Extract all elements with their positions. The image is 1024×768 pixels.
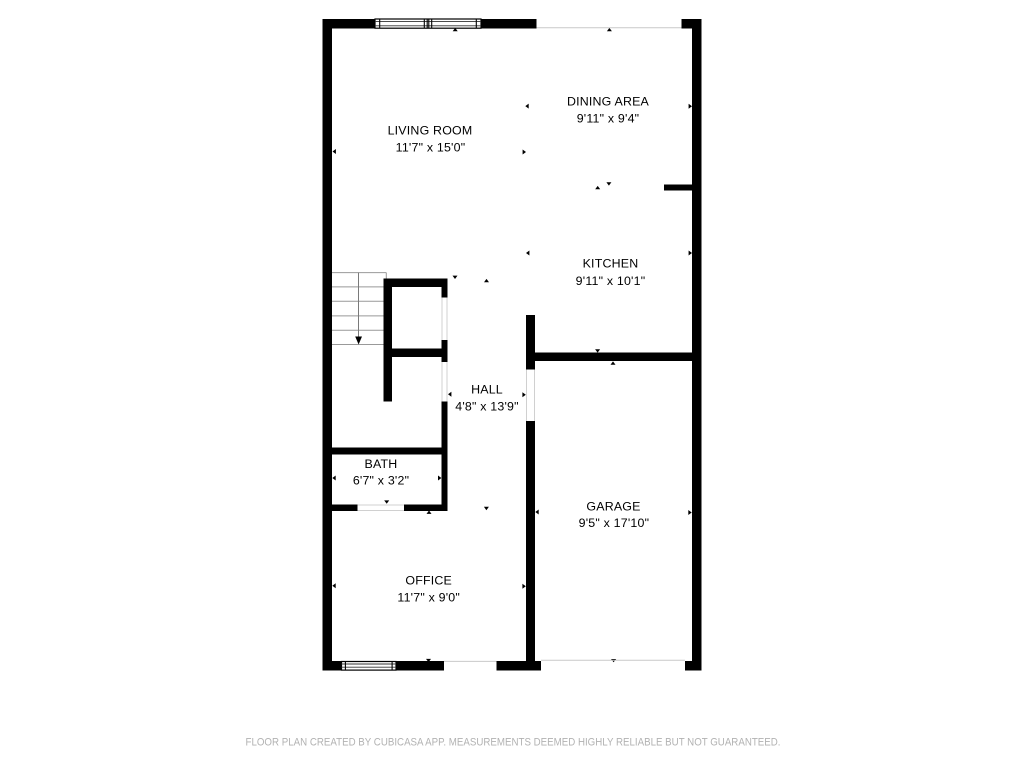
svg-text:9'5" x 17'10": 9'5" x 17'10"	[579, 516, 650, 530]
svg-text:11'7" x 15'0": 11'7" x 15'0"	[396, 140, 466, 154]
svg-text:11'7" x 9'0": 11'7" x 9'0"	[397, 591, 460, 605]
svg-text:OFFICE: OFFICE	[405, 574, 452, 588]
svg-text:9'11" x 9'4": 9'11" x 9'4"	[577, 111, 640, 125]
svg-text:FLOOR PLAN CREATED BY CUBICASA: FLOOR PLAN CREATED BY CUBICASA APP. MEAS…	[246, 737, 781, 749]
svg-text:LIVING ROOM: LIVING ROOM	[388, 124, 473, 138]
svg-text:BATH: BATH	[365, 457, 398, 471]
svg-text:HALL: HALL	[471, 382, 503, 396]
svg-text:4'8" x 13'9": 4'8" x 13'9"	[455, 399, 518, 413]
svg-text:KITCHEN: KITCHEN	[583, 257, 639, 271]
svg-text:DINING AREA: DINING AREA	[567, 94, 650, 108]
svg-text:6'7" x 3'2": 6'7" x 3'2"	[353, 473, 409, 487]
svg-text:GARAGE: GARAGE	[586, 500, 640, 514]
svg-text:9'11" x 10'1": 9'11" x 10'1"	[576, 274, 646, 288]
